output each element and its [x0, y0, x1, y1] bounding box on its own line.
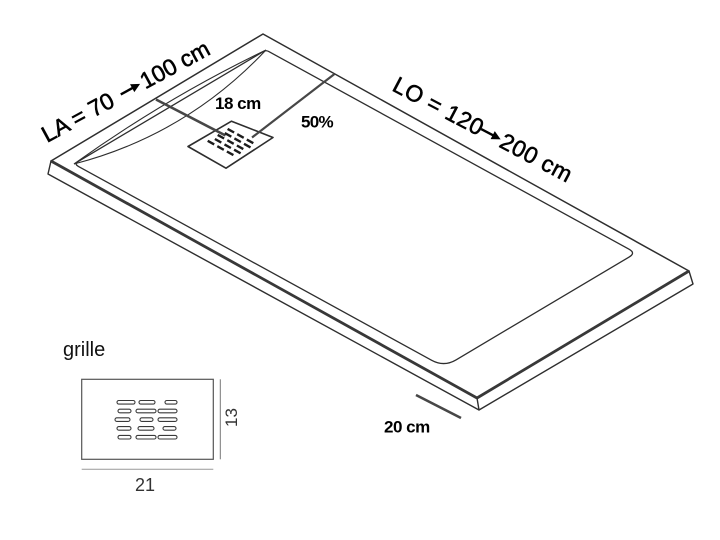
svg-text:20 cm: 20 cm [384, 418, 430, 437]
svg-text:18 cm: 18 cm [215, 94, 261, 113]
svg-text:13: 13 [222, 408, 241, 427]
svg-text:21: 21 [135, 475, 155, 495]
svg-text:grille: grille [63, 339, 105, 361]
svg-text:50%: 50% [301, 113, 334, 132]
